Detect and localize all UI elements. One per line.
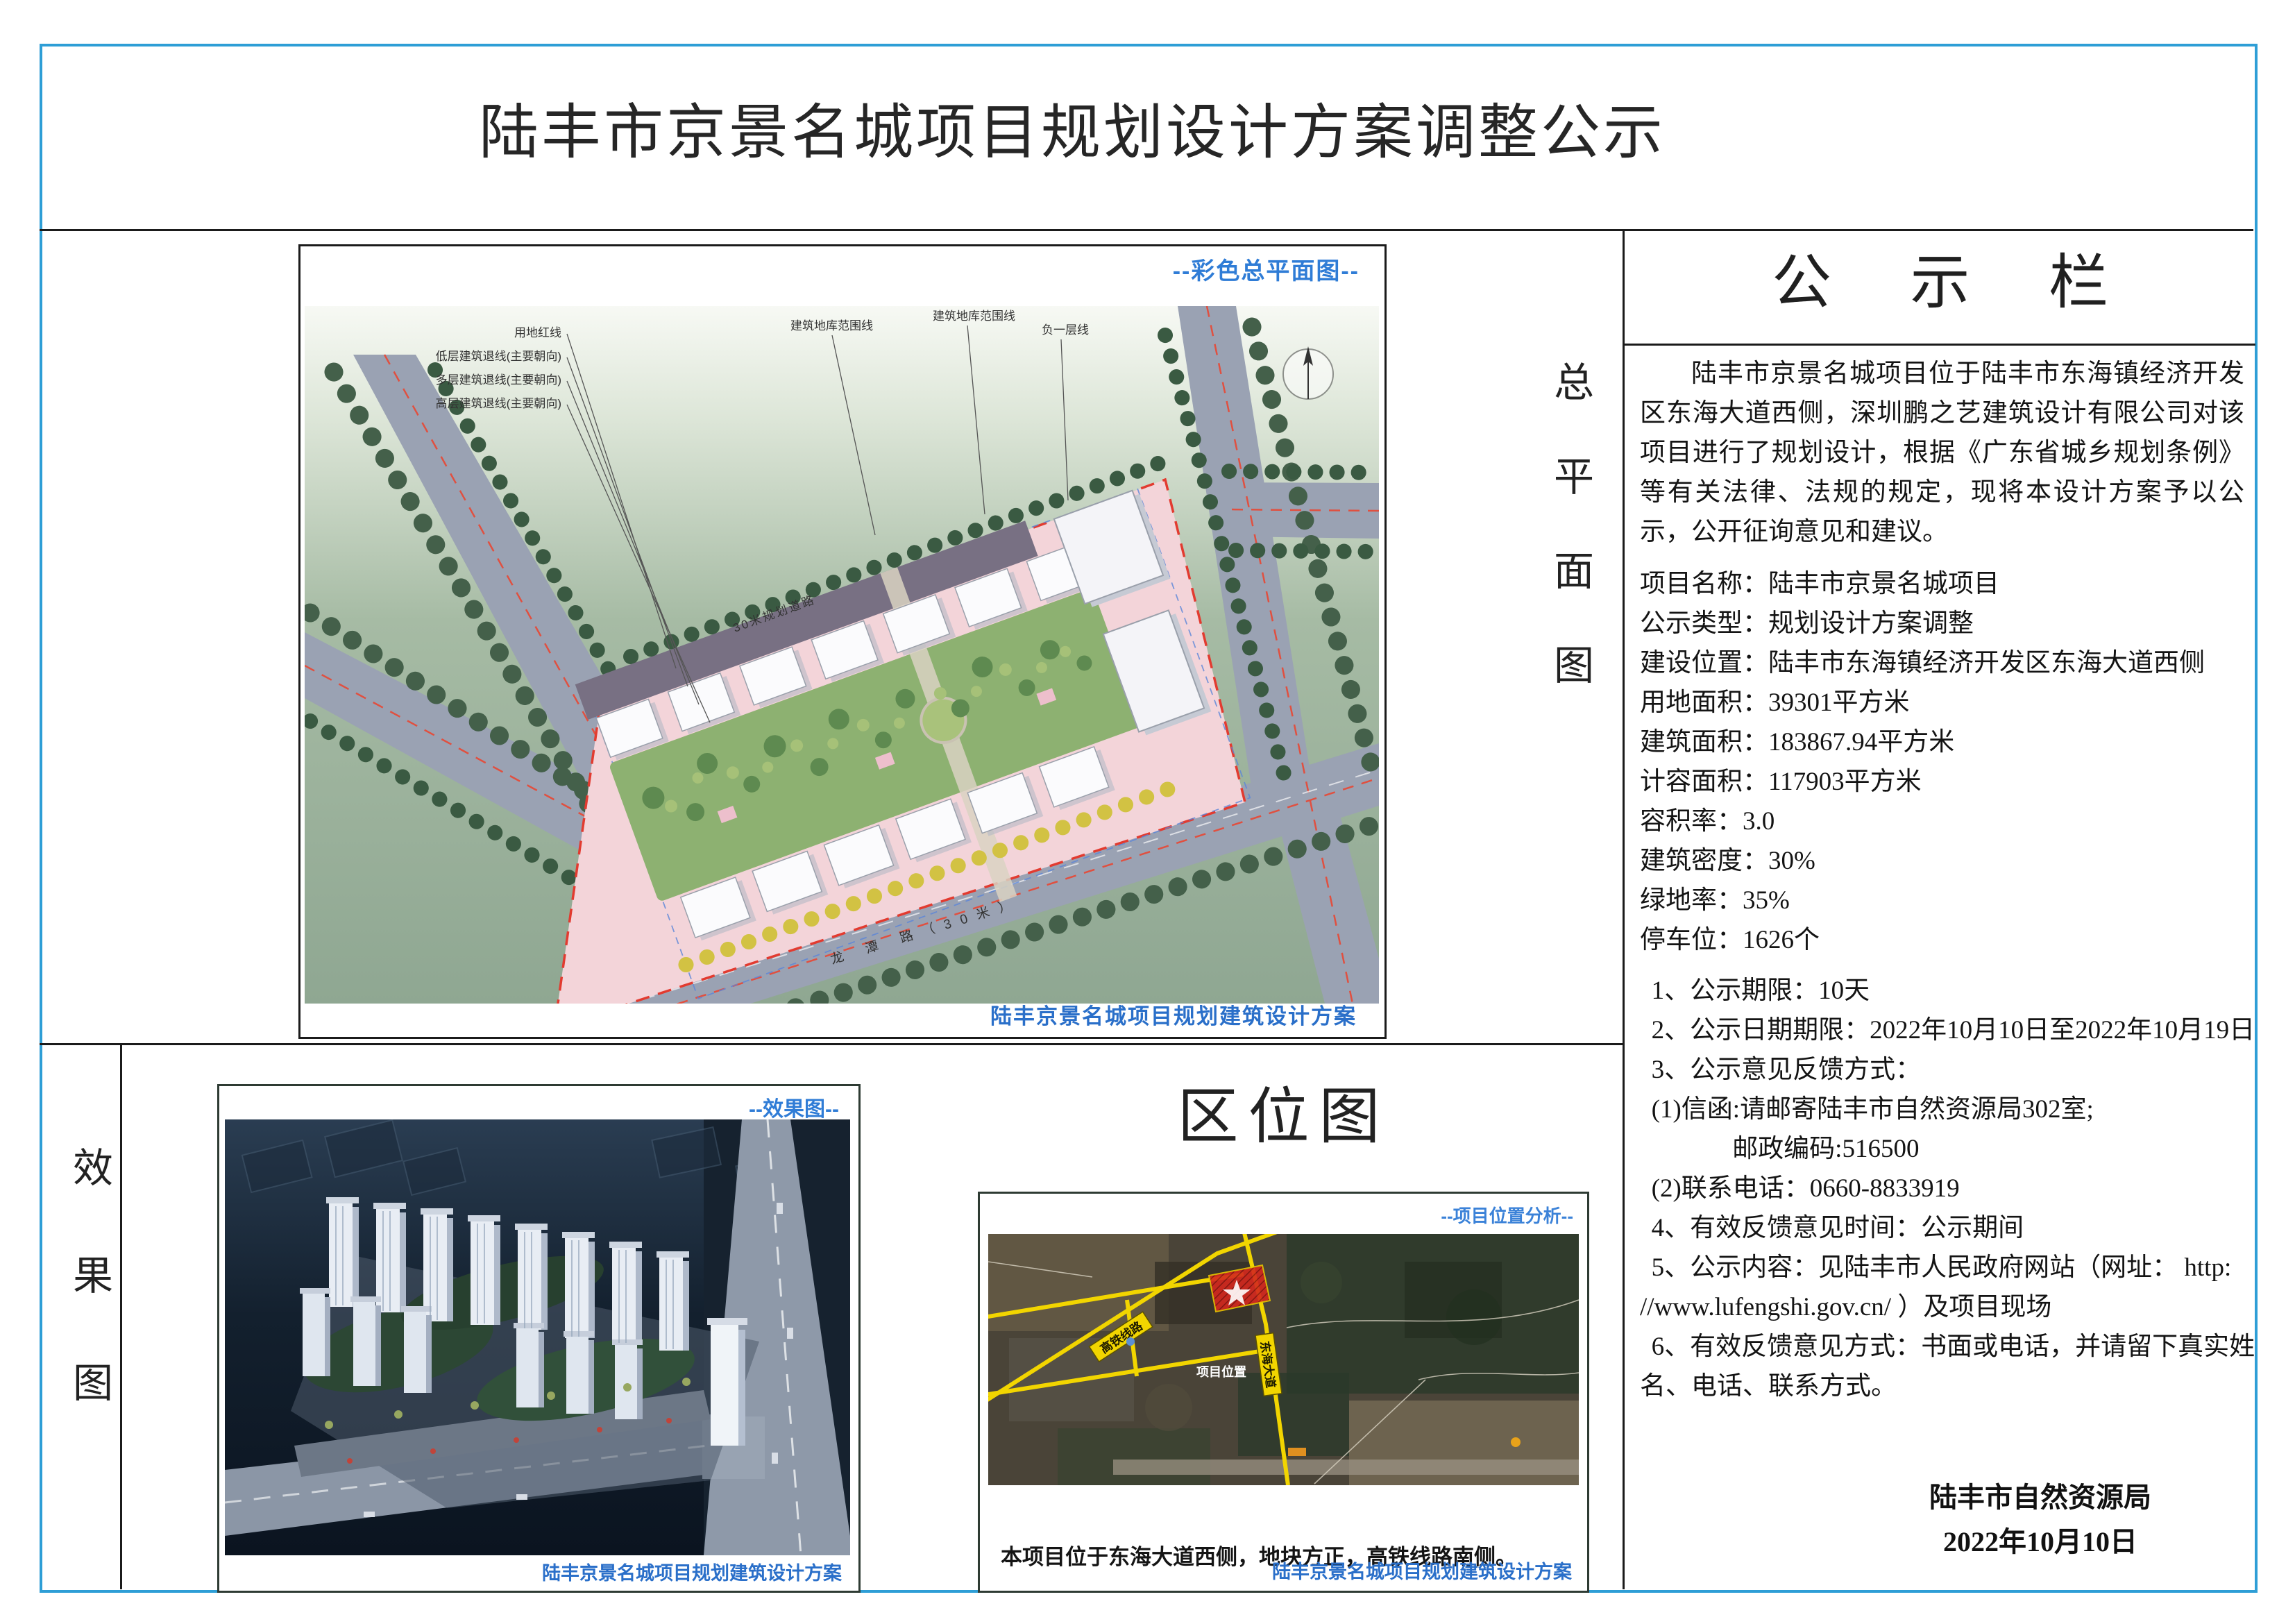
notice-agency: 陆丰市自然资源局	[1929, 1475, 2151, 1520]
notice-item-3-1-postcode: 邮政编码:516500	[1640, 1129, 2244, 1169]
field-location: 建设位置：陆丰市东海镇经济开发区东海大道西侧	[1640, 643, 2244, 683]
notice-item-6-cont: 名、电话、联系方式。	[1640, 1367, 2244, 1406]
notice-item-2: 2、公示日期期限：2022年10月10日至2022年10月19日	[1640, 1010, 2244, 1050]
notice-intro: 陆丰市京景名城项目位于陆丰市东海镇经济开发区东海大道西侧，深圳鹏之艺建筑设计有限…	[1640, 354, 2244, 552]
field-building-density: 建筑密度：30%	[1640, 841, 2244, 881]
svg-text:建筑地库范围线: 建筑地库范围线	[933, 310, 1015, 323]
notice-board: 公 示 栏 陆丰市京景名城项目位于陆丰市东海镇经济开发区东海大道西侧，深圳鹏之艺…	[1623, 229, 2255, 1589]
svg-text:用地红线: 用地红线	[514, 326, 561, 339]
notice-signature: 陆丰市自然资源局 2022年10月10日	[1929, 1475, 2151, 1564]
rendering-side-label: 效果图	[60, 1147, 118, 1469]
svg-text:高层建筑退线(主要朝向): 高层建筑退线(主要朝向)	[436, 397, 561, 410]
rendering-image	[225, 1119, 850, 1555]
field-gross-floor-area: 建筑面积：183867.94平方米	[1640, 722, 2244, 762]
rendering-corner-label: --效果图--	[749, 1092, 839, 1122]
page-title: 陆丰市京景名城项目规划设计方案调整公示	[378, 83, 1766, 170]
site-plan-panel: --彩色总平面图--	[298, 244, 1387, 1039]
notice-item-3-1: (1)信函:请邮寄陆丰市自然资源局302室;	[1640, 1090, 2244, 1129]
notice-items: 1、公示期限：10天 2、公示日期期限：2022年10月10日至2022年10月…	[1640, 971, 2244, 1406]
site-plan-caption: 陆丰京景名城项目规划建筑设计方案	[990, 999, 1357, 1030]
rendering-caption: 陆丰京景名城项目规划建筑设计方案	[542, 1558, 842, 1585]
notice-board-header: 公 示 栏	[1625, 233, 2255, 320]
location-map-caption: 陆丰京景名城项目规划建筑设计方案	[1272, 1557, 1572, 1584]
svg-text:低层建筑退线(主要朝向): 低层建筑退线(主要朝向)	[436, 350, 561, 363]
notice-item-3: 3、公示意见反馈方式：	[1640, 1050, 2244, 1090]
site-plan-corner-label: --彩色总平面图--	[1173, 252, 1360, 286]
location-map-title: 区位图	[978, 1067, 1589, 1156]
field-land-area: 用地面积：39301平方米	[1640, 683, 2244, 722]
location-map-panel: --项目位置分析--	[978, 1192, 1589, 1593]
notice-header-divider	[1625, 344, 2255, 346]
notice-item-1: 1、公示期限：10天	[1640, 971, 2244, 1010]
site-plan-side-label: 总平面图	[1541, 361, 1599, 738]
notice-body: 陆丰市京景名城项目位于陆丰市东海镇经济开发区东海大道西侧，深圳鹏之艺建筑设计有限…	[1640, 354, 2244, 1406]
field-parking: 停车位：1626个	[1640, 920, 2244, 960]
effect-strip-divider-line	[120, 1045, 122, 1589]
left-section-divider-line	[40, 1043, 1623, 1045]
field-project-name: 项目名称：陆丰市京景名城项目	[1640, 564, 2244, 604]
field-plot-ratio: 容积率：3.0	[1640, 802, 2244, 841]
svg-text:负一层线: 负一层线	[1042, 323, 1089, 337]
svg-text:多层建筑退线(主要朝向): 多层建筑退线(主要朝向)	[436, 373, 561, 387]
notice-fields: 项目名称：陆丰市京景名城项目 公示类型：规划设计方案调整 建设位置：陆丰市东海镇…	[1640, 564, 2244, 960]
notice-item-4: 4、有效反馈意见时间：公示期间	[1640, 1208, 2244, 1248]
notice-item-5: 5、公示内容：见陆丰市人民政府网站（网址： http:	[1640, 1248, 2244, 1287]
notice-item-5-url: //www.lufengshi.gov.cn/ ）及项目现场	[1640, 1287, 2244, 1327]
notice-item-3-2: (2)联系电话：0660-8833919	[1640, 1169, 2244, 1208]
announcement-sheet: 陆丰市京景名城项目规划设计方案调整公示 总平面图 效果图 --彩色总平面图--	[0, 0, 2295, 1624]
field-countable-area: 计容面积：117903平方米	[1640, 762, 2244, 802]
notice-item-6: 6、有效反馈意见方式：书面或电话，并请留下真实姓	[1640, 1327, 2244, 1367]
field-notice-type: 公示类型：规划设计方案调整	[1640, 604, 2244, 643]
notice-date: 2022年10月10日	[1929, 1520, 2151, 1564]
field-green-ratio: 绿地率：35%	[1640, 881, 2244, 920]
location-map-image: 项目位置 高铁线路 东海大道	[988, 1234, 1579, 1485]
rendering-panel: --效果图--	[217, 1084, 861, 1593]
site-plan-drawing: 用地红线 低层建筑退线(主要朝向) 多层建筑退线(主要朝向) 高层建筑退线(主要…	[305, 306, 1379, 1004]
map-marker-label: 项目位置	[1196, 1364, 1246, 1379]
location-map-corner-label: --项目位置分析--	[1441, 1202, 1573, 1228]
svg-text:建筑地库范围线: 建筑地库范围线	[790, 319, 873, 332]
